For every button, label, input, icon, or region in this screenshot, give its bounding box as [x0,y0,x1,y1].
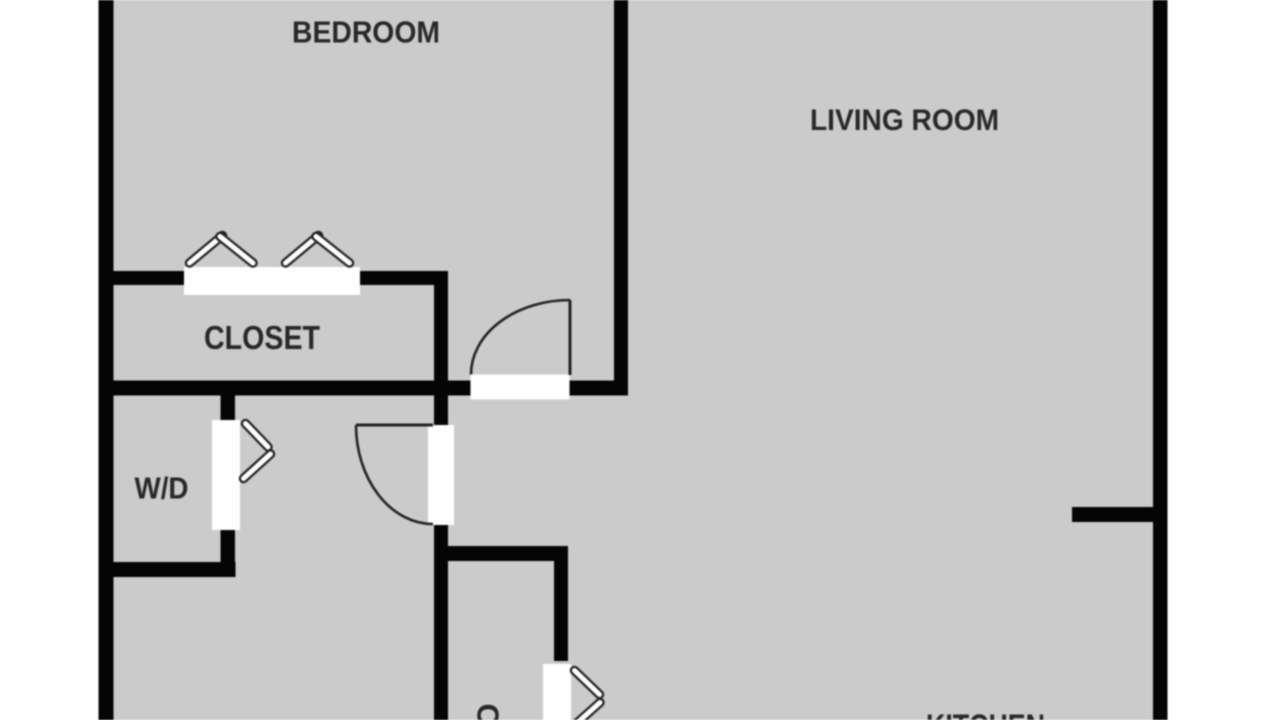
svg-text:C: C [471,704,506,720]
svg-text:LIVING ROOM: LIVING ROOM [810,104,999,137]
svg-text:KITCHEN: KITCHEN [926,708,1045,720]
svg-text:BEDROOM: BEDROOM [292,15,440,50]
svg-text:CLOSET: CLOSET [204,319,320,356]
svg-text:W/D: W/D [135,471,189,506]
